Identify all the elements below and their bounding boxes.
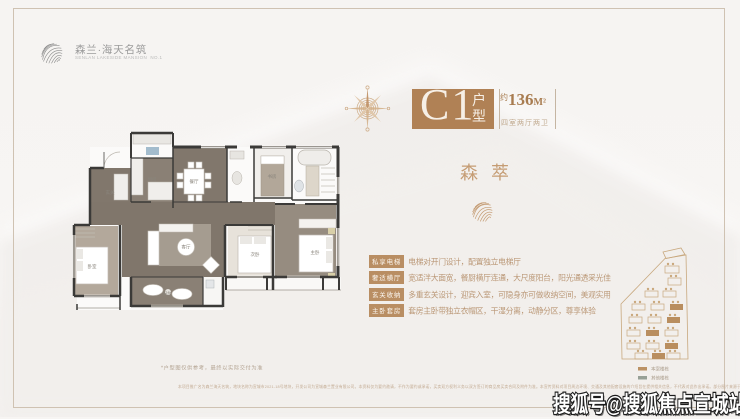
svg-text:阳台: 阳台 bbox=[163, 290, 172, 297]
svg-text:主卧: 主卧 bbox=[311, 249, 320, 256]
svg-text:玄关: 玄关 bbox=[106, 189, 115, 196]
svg-text:卧室: 卧室 bbox=[88, 263, 97, 270]
svg-text:本案楼栋: 本案楼栋 bbox=[651, 366, 669, 373]
svg-text:厨房: 厨房 bbox=[148, 176, 157, 183]
svg-text:次卧: 次卧 bbox=[251, 251, 260, 258]
svg-text:餐厅: 餐厅 bbox=[190, 178, 199, 185]
svg-text:客厅: 客厅 bbox=[182, 244, 191, 251]
svg-text:书房: 书房 bbox=[268, 173, 277, 180]
svg-text:其他楼栋: 其他楼栋 bbox=[651, 375, 669, 382]
